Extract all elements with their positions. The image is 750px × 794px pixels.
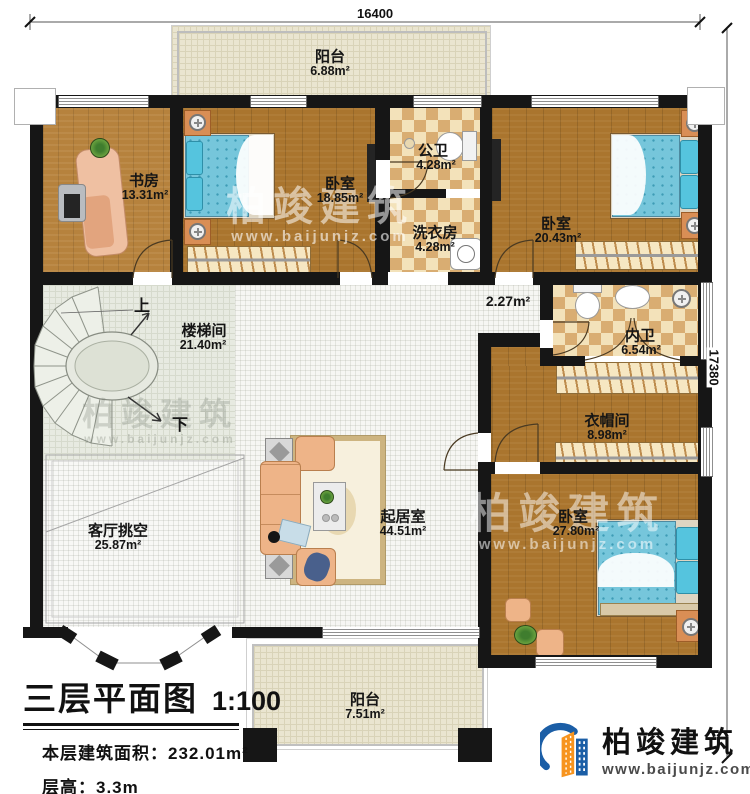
room-label-bedroom3: 卧室 — [558, 510, 588, 525]
title-underline — [23, 723, 239, 726]
corridor-area-label: 2.27m² — [486, 294, 530, 308]
stair-down-label: 下 — [172, 418, 188, 434]
title-underline-thin — [23, 729, 239, 730]
floor-plan: 柏竣建筑 www.baijunjz.com 柏竣建筑 www.baijunjz.… — [0, 0, 750, 794]
room-area-bedroom3: 27.80m² — [553, 525, 600, 538]
room-label-laundry: 洗衣房 — [412, 226, 457, 241]
room-area-laundry: 4.28m² — [415, 241, 455, 254]
floor-height-line: 层高：3.3m — [42, 773, 281, 794]
room-label-inner-bath: 内卫 — [625, 329, 655, 344]
logo-company-name: 柏竣建筑 — [602, 729, 750, 758]
room-label-stair-hall: 楼梯间 — [181, 324, 226, 339]
room-area-study: 13.31m² — [122, 189, 169, 202]
company-logo: 柏竣建筑 www.baijunjz.com — [540, 722, 750, 784]
room-area-closet: 8.98m² — [587, 429, 627, 442]
dimension-right: 17380 — [707, 347, 722, 387]
room-area-living: 44.51m² — [380, 525, 427, 538]
room-label-closet: 衣帽间 — [584, 414, 629, 429]
room-area-inner-bath: 6.54m² — [621, 344, 661, 357]
bay-window — [60, 630, 218, 665]
floor-height-label: 层高： — [42, 778, 96, 794]
room-area-void: 25.87m² — [95, 539, 142, 552]
plan-title: 三层平面图 — [23, 672, 198, 720]
room-label-bedroom2: 卧室 — [541, 217, 571, 232]
floor-area-value: 232.01m² — [168, 744, 249, 763]
stair-up-label: 上 — [134, 299, 150, 315]
room-label-balcony-bottom: 阳台 — [350, 693, 380, 708]
room-area-bedroom1: 18.85m² — [317, 192, 364, 205]
room-area-bedroom2: 20.43m² — [535, 232, 582, 245]
room-label-study: 书房 — [129, 174, 159, 189]
floor-height-value: 3.3m — [96, 778, 139, 794]
room-area-balcony-bottom: 7.51m² — [345, 708, 385, 721]
room-label-bedroom1: 卧室 — [325, 177, 355, 192]
room-label-public-bath: 公卫 — [418, 144, 448, 159]
room-label-balcony-top: 阳台 — [315, 50, 345, 65]
room-area-balcony-top: 6.88m² — [310, 65, 350, 78]
floor-area-line: 本层建筑面积：232.01m² — [42, 739, 281, 764]
room-area-stair-hall: 21.40m² — [180, 339, 227, 352]
plan-scale: 1:100 — [212, 686, 281, 717]
dimension-top: 16400 — [355, 6, 395, 21]
room-area-public-bath: 4.28m² — [416, 159, 456, 172]
room-label-void: 客厅挑空 — [88, 524, 148, 539]
logo-icon — [540, 722, 594, 784]
logo-website: www.baijunjz.com — [602, 761, 750, 778]
title-block: 三层平面图 1:100 本层建筑面积：232.01m² 层高：3.3m — [23, 672, 281, 794]
room-label-living: 起居室 — [380, 510, 425, 525]
floor-area-label: 本层建筑面积： — [42, 744, 168, 763]
